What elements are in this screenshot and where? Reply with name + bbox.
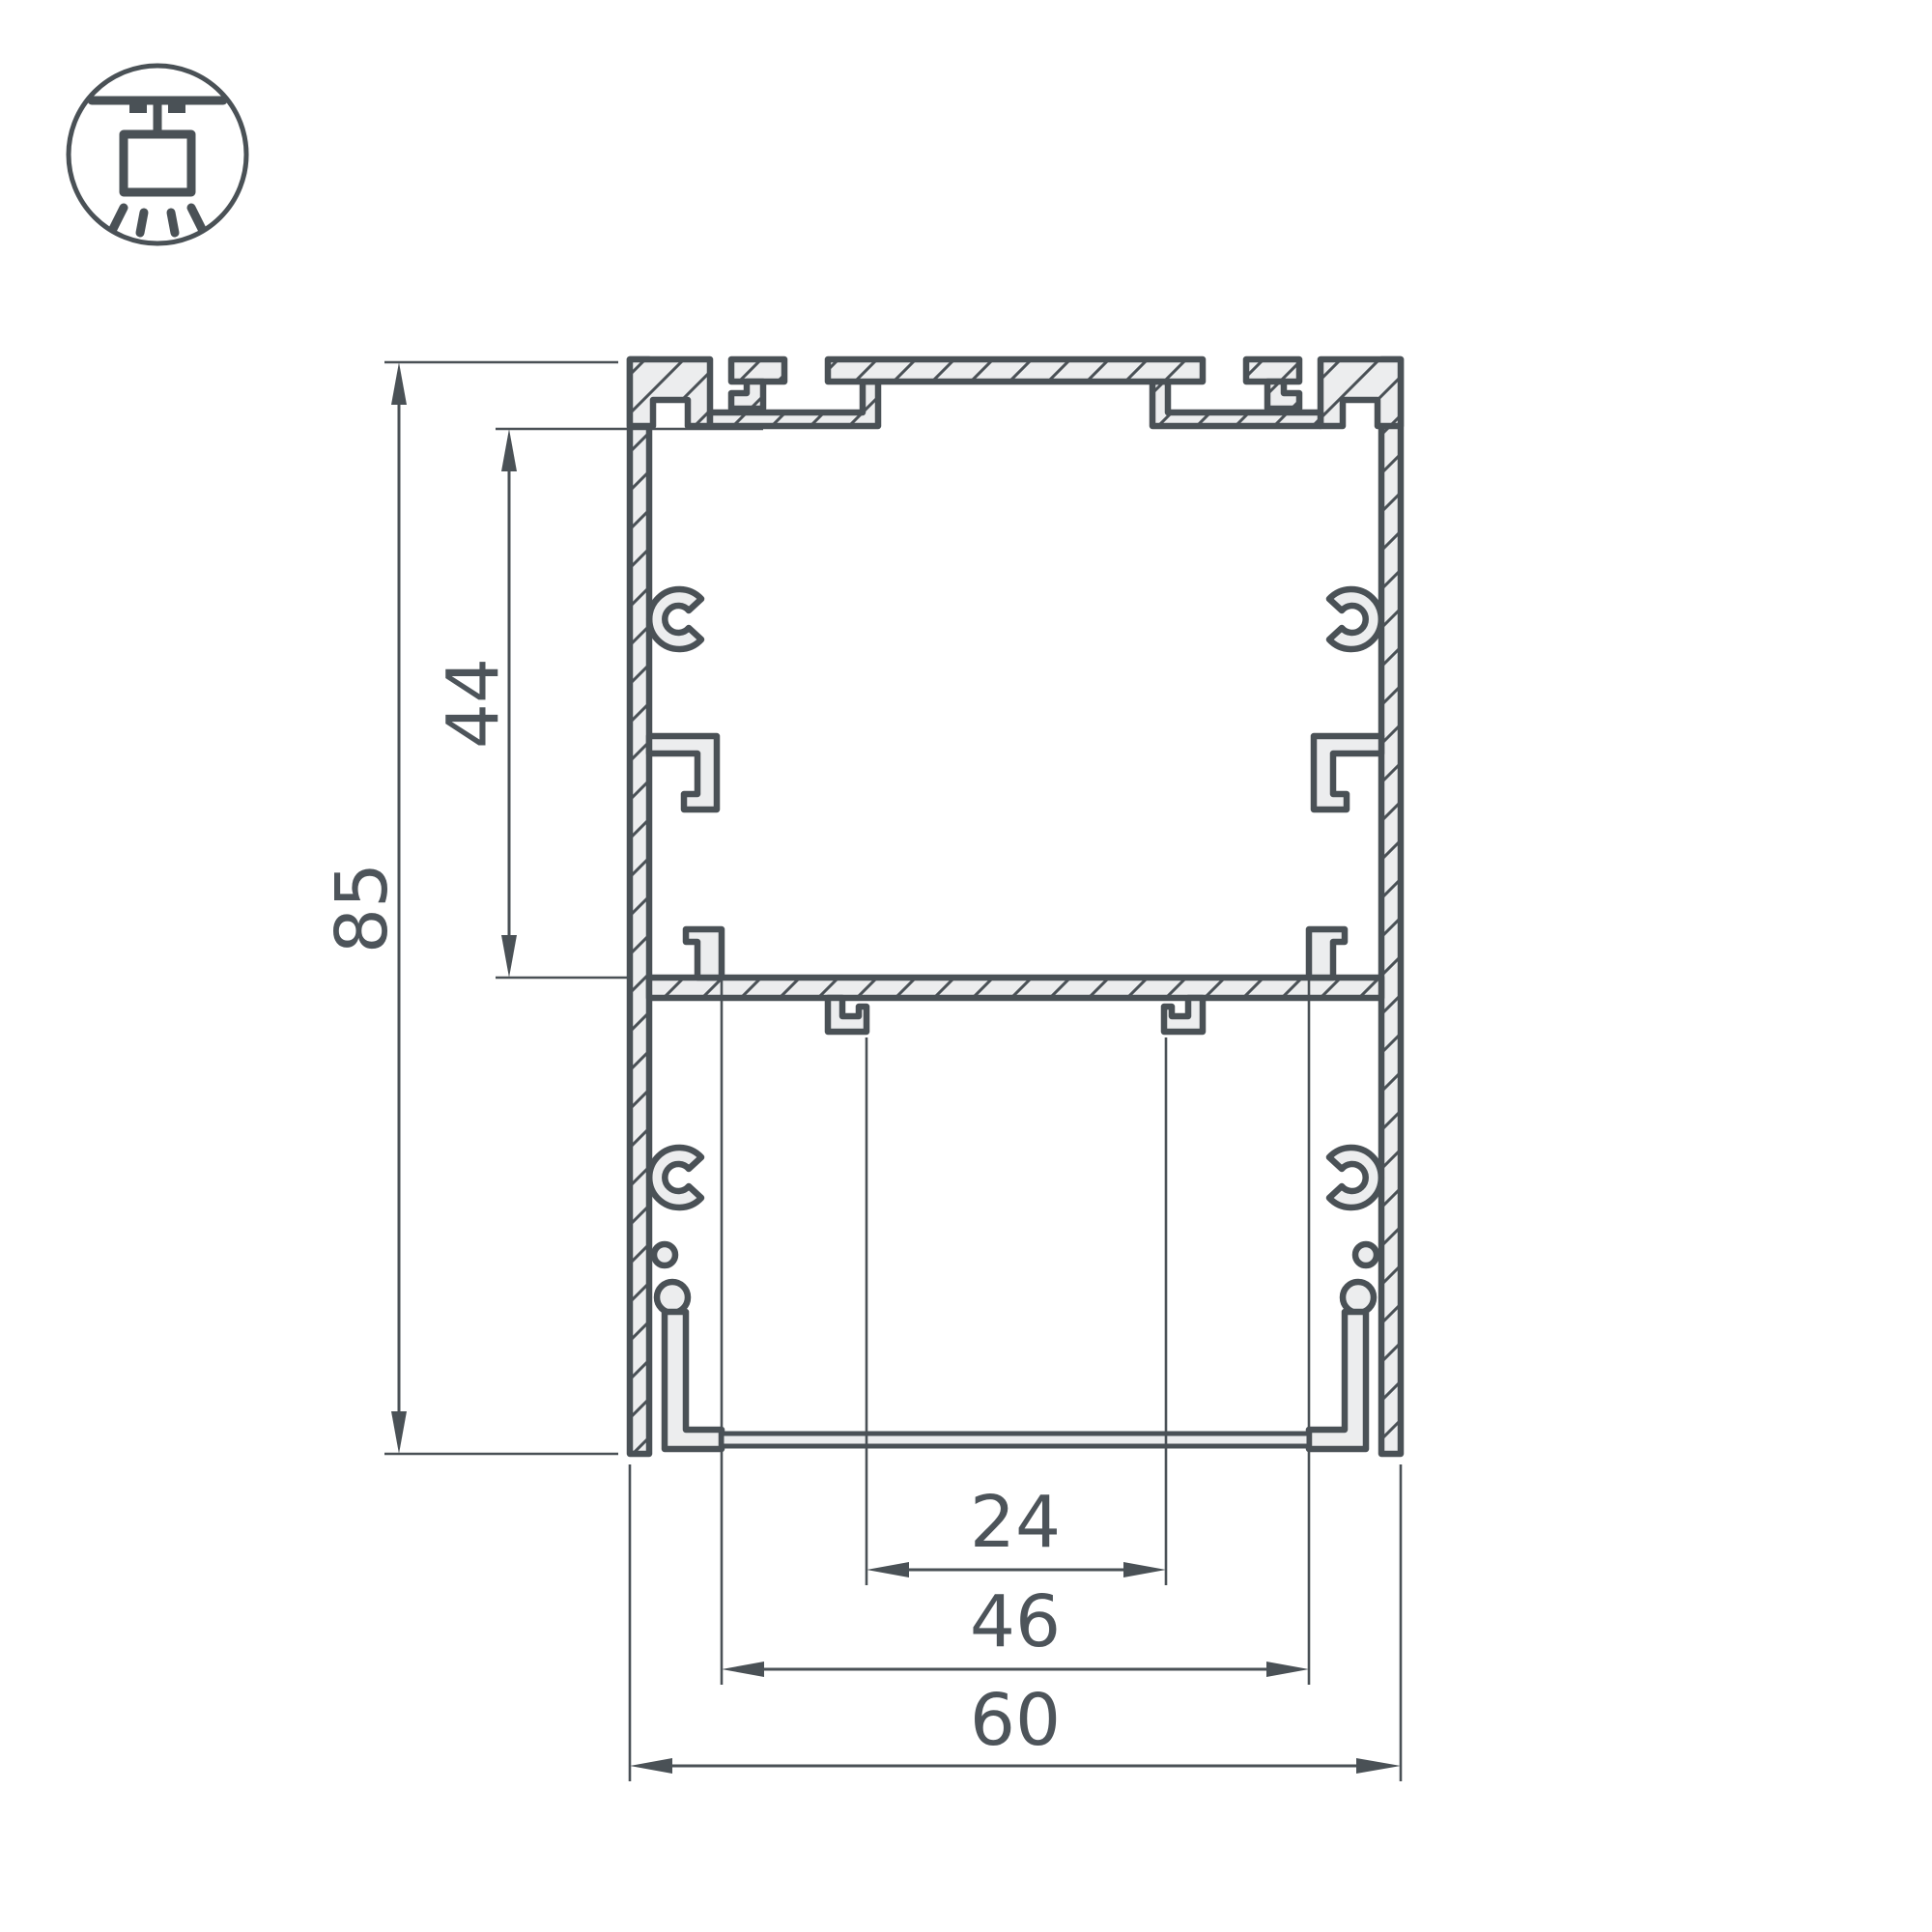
clip-boss-left [657,1282,688,1313]
left-wall [630,359,649,1454]
dimension-46: 46 [722,945,1309,1685]
top-left-block [630,359,710,426]
top-left-tab [731,359,784,382]
arrowhead-left [630,1758,672,1774]
arrowhead-right [1123,1562,1166,1577]
screw-boss-lower-left [649,1148,701,1207]
dimension-label-24: 24 [970,1481,1061,1564]
icon-light-ray [140,213,144,233]
drawing-canvas: 85 44 24 46 60 [0,0,1932,1932]
icon-circle [69,66,246,243]
dimension-85: 85 [321,362,618,1454]
wall-hook-upper-left [649,736,717,810]
bottom-lip-right [1309,1312,1366,1449]
divider-wall [649,978,1381,998]
screw-boss-upper-right [1329,589,1381,649]
clip-boss-right [1343,1282,1374,1313]
arrowhead-left [867,1562,909,1577]
icon-light-ray [113,208,124,229]
bottom-lip-left [665,1312,722,1449]
dimension-44: 44 [432,429,763,978]
top-right-block [1321,359,1401,426]
arrowhead-down [501,935,517,978]
divider-hook-left [828,998,867,1032]
clip-bump-right [1355,1244,1377,1265]
arrowhead-down [391,1411,407,1454]
top-right-tab [1246,359,1299,382]
icon-ceiling-tab-left [129,102,147,113]
divider-upstand-right [1309,929,1345,978]
screw-boss-lower-right [1329,1148,1381,1207]
clip-bump-left [654,1244,675,1265]
icon-ceiling-tab-right [168,102,185,113]
pendant-mount-icon [69,66,246,243]
arrowhead-up [391,362,407,405]
profile-section [630,359,1401,1454]
dimension-label-85: 85 [321,863,404,953]
dimension-label-60: 60 [970,1679,1061,1762]
arrowhead-left [722,1662,764,1677]
icon-light-ray [171,213,175,233]
dimension-label-44: 44 [432,658,515,749]
icon-luminaire-box [124,134,191,192]
top-left-tab-hook [731,382,763,409]
icon-light-ray [191,208,202,229]
top-center-plate [828,359,1203,382]
top-right-tab-hook [1267,382,1299,409]
dimension-24: 24 [867,1037,1166,1585]
wall-hook-upper-right [1314,736,1381,810]
arrowhead-right [1266,1662,1309,1677]
screw-boss-upper-left [649,589,701,649]
arrowhead-up [501,429,517,471]
right-wall [1381,359,1401,1454]
profile-cross-section-drawing: 85 44 24 46 60 [0,0,1932,1932]
divider-hook-right [1164,998,1203,1032]
dimension-label-46: 46 [970,1580,1061,1663]
arrowhead-right [1356,1758,1401,1774]
divider-upstand-left [686,929,722,978]
diffuser-shelf [722,1434,1309,1446]
